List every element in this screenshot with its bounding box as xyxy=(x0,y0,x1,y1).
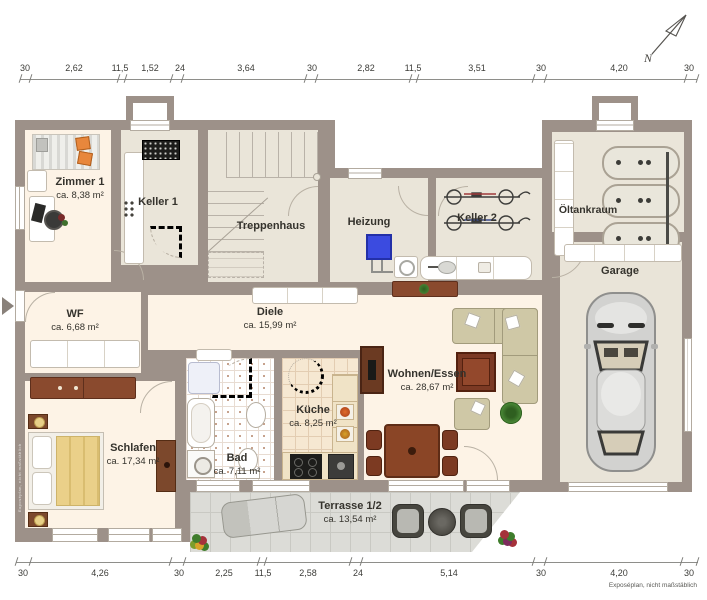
oil-pipe xyxy=(666,152,669,254)
bathtub-inner xyxy=(191,403,211,443)
tank-fitting xyxy=(616,236,621,241)
dim-label: 2,82 xyxy=(357,63,375,73)
stairs-lower-flight xyxy=(208,180,264,252)
sliding-door xyxy=(252,480,310,492)
dim-label: 11,5 xyxy=(112,63,129,73)
dim-label: 2,58 xyxy=(299,568,317,578)
window xyxy=(348,168,382,179)
dim-label: 4,20 xyxy=(610,568,628,578)
terrace-door xyxy=(466,480,510,492)
tank-fitting xyxy=(638,160,643,165)
shower xyxy=(188,362,220,394)
window xyxy=(388,480,464,492)
dimension-line-bottom xyxy=(16,562,698,563)
dim-label: 30 xyxy=(536,568,546,578)
north-arrow-icon: N xyxy=(638,8,700,66)
boiler xyxy=(366,234,392,260)
shelf xyxy=(27,170,47,192)
entrance-arrow-icon xyxy=(2,297,14,315)
window xyxy=(108,528,150,542)
lamp xyxy=(34,515,45,526)
duvet xyxy=(56,436,100,506)
dim-label: 30 xyxy=(18,568,28,578)
dim-label: 24 xyxy=(353,568,363,578)
dim-label: 4,20 xyxy=(610,63,628,73)
door-arc-kueche xyxy=(288,358,324,394)
window xyxy=(196,480,240,492)
window xyxy=(52,528,98,542)
counter-heizung xyxy=(420,256,532,280)
dim-label: 5,14 xyxy=(440,568,458,578)
svg-text:N: N xyxy=(643,51,653,65)
terrace-table xyxy=(428,508,456,536)
dining-chair xyxy=(366,456,382,476)
utility-sink-basin xyxy=(399,260,415,276)
wardrobe-handle xyxy=(58,386,62,390)
burner xyxy=(308,458,317,467)
wf-counter xyxy=(30,340,140,368)
decor-item xyxy=(62,220,68,226)
plant xyxy=(419,284,429,294)
dimension-line-top xyxy=(20,79,697,80)
coffee-table-top xyxy=(462,358,490,386)
dim-label: 30 xyxy=(20,63,30,73)
tank-fitting xyxy=(616,160,621,165)
kitchen-item-food xyxy=(340,429,350,439)
watermark: Exposéplan, nicht maßstäblich xyxy=(17,443,22,512)
tank-fitting xyxy=(638,236,643,241)
toilet-tank xyxy=(236,470,260,479)
dining-chair xyxy=(366,430,382,450)
dim-label: 3,64 xyxy=(237,63,255,73)
footer-note: Exposéplan, nicht maßstäblich xyxy=(609,582,697,589)
dim-label: 24 xyxy=(175,63,185,73)
dining-chair xyxy=(442,456,458,476)
stairs-railing xyxy=(226,177,318,178)
terrace-door xyxy=(152,528,182,542)
dim-label: 30 xyxy=(684,568,694,578)
bicycles xyxy=(438,185,534,239)
dim-label: 3,51 xyxy=(468,63,486,73)
storage-rack xyxy=(142,140,180,160)
cabinet-oeltankraum xyxy=(554,140,574,256)
armchair xyxy=(454,398,490,430)
dim-label: 4,26 xyxy=(91,568,109,578)
car xyxy=(584,290,658,474)
dining-chair xyxy=(442,430,458,450)
entrance-door-gap xyxy=(15,290,25,322)
dim-label: 11,5 xyxy=(255,568,272,578)
toilet-bowl xyxy=(238,448,258,472)
pillow xyxy=(32,472,52,505)
tank-fitting xyxy=(646,160,651,165)
dishwasher-dial xyxy=(337,462,345,470)
dim-label: 2,62 xyxy=(65,63,83,73)
burner xyxy=(294,468,303,477)
diele-counter xyxy=(252,287,358,304)
wardrobe-handle xyxy=(74,386,78,390)
washer-door xyxy=(194,457,212,475)
bath-cabinet xyxy=(196,349,232,361)
dim-label: 30 xyxy=(536,63,546,73)
counter-sink xyxy=(438,261,456,274)
stairs-upper-flight xyxy=(226,132,318,178)
burner xyxy=(294,458,303,467)
tank-fitting xyxy=(616,198,621,203)
terrace-chair-cushion xyxy=(465,509,487,533)
burner xyxy=(308,468,317,477)
garage-door-rail xyxy=(684,338,692,432)
pillow xyxy=(32,436,52,469)
stairs-post xyxy=(313,173,321,181)
fireplace-firebox xyxy=(368,360,376,380)
plant xyxy=(500,402,522,424)
lamp xyxy=(34,417,45,428)
window xyxy=(15,186,25,230)
pillow xyxy=(77,151,93,166)
dim-label: 11,5 xyxy=(405,63,422,73)
flowers xyxy=(500,530,509,539)
crate xyxy=(123,200,136,218)
garage-shelf xyxy=(564,244,682,262)
stairs-dashed xyxy=(208,252,264,278)
boiler-pipe xyxy=(371,271,393,273)
pillow xyxy=(75,136,91,151)
flowers xyxy=(192,534,201,543)
dining-table-knob xyxy=(408,447,416,455)
dresser-knob xyxy=(164,462,170,468)
tank-fitting xyxy=(638,198,643,203)
pillow xyxy=(36,138,48,152)
window xyxy=(130,120,170,131)
window xyxy=(596,120,634,131)
dim-label: 30 xyxy=(174,568,184,578)
wardrobe xyxy=(30,377,136,399)
tank-fitting xyxy=(646,198,651,203)
counter-item xyxy=(478,262,491,273)
dim-label: 2,25 xyxy=(215,568,233,578)
bathroom-sink xyxy=(246,402,266,428)
kitchen-item-food xyxy=(340,407,350,417)
terrace-chair-cushion xyxy=(397,509,419,533)
garage-door xyxy=(568,482,668,492)
dim-label: 30 xyxy=(307,63,317,73)
faucet xyxy=(428,266,438,268)
floor-plan: 30 2,62 11,5 1,52 24 3,64 30 2,82 11,5 3… xyxy=(0,0,707,600)
dim-label: 1,52 xyxy=(141,63,159,73)
tank-fitting xyxy=(646,236,651,241)
